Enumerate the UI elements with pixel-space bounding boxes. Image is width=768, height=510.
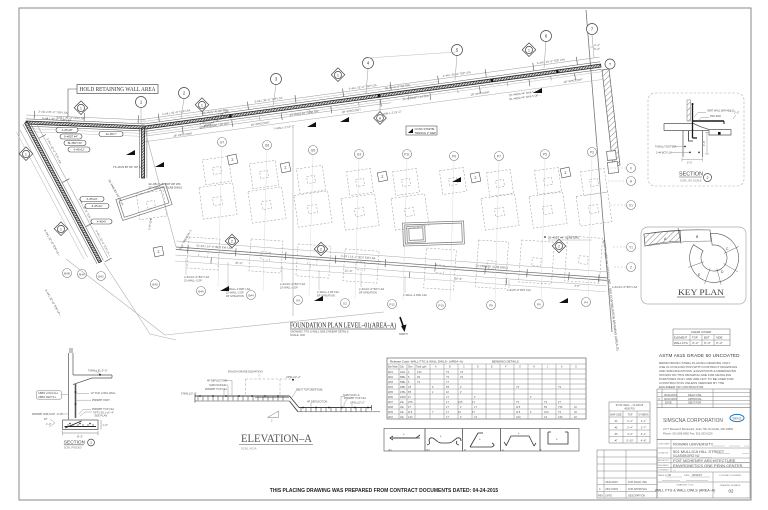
svg-text:DATE: DATE — [665, 400, 672, 404]
svg-text:REV: REV — [598, 495, 603, 498]
svg-text:#5DWBT DWLS DP –0′–6″: #5DWBT DWLS DP –0′–6″ — [32, 412, 63, 416]
svg-text:45BL: 45BL — [400, 386, 406, 389]
svg-text:G4: G4 — [296, 298, 300, 302]
svg-text:06/17/2015: 06/17/2015 — [606, 488, 619, 491]
svg-text:11′5: 11′5 — [408, 411, 413, 414]
svg-text:4–#5×9′: 4–#5×9′ — [97, 220, 107, 224]
svg-text:2′–2″: 2′–2″ — [734, 112, 739, 115]
svg-text:ENGINEER OR CONTRACTOR.: ENGINEER OR CONTRACTOR. — [659, 385, 704, 389]
svg-text:SHOWING: FTG & WALL DWLS REBAR: SHOWING: FTG & WALL DWLS REBAR DETAILS — [290, 330, 349, 334]
svg-text:CONTRACT NUMBER: CONTRACT NUMBER — [719, 474, 742, 477]
svg-text:OTHERS: OTHERS — [638, 413, 649, 416]
svg-text:D: D — [477, 365, 479, 368]
svg-text:G2: G2 — [343, 301, 347, 305]
svg-text:19L: 19L — [400, 411, 405, 414]
svg-text:2177 Research Boulevard, Suite: 2177 Research Boulevard, Suite 700, Rock… — [663, 427, 734, 431]
svg-text:G: G — [519, 365, 521, 368]
svg-text:ABBR DEPT/LL: ABBR DEPT/LL — [38, 395, 57, 399]
svg-text:19L: 19L — [400, 416, 405, 419]
svg-text:1: 1 — [80, 107, 82, 111]
svg-text:1: 1 — [60, 228, 62, 232]
svg-text:G7: G7 — [220, 140, 224, 144]
svg-text:4000 PSI: 4000 PSI — [624, 408, 635, 411]
svg-text:47BL: 47BL — [400, 391, 406, 394]
svg-text:UPSLL/2′–2″: UPSLL/2′–2″ — [286, 375, 301, 379]
svg-text:P6: P6 — [537, 302, 541, 306]
svg-text:SIDE: SIDE — [716, 336, 723, 340]
svg-text:B42: B42 — [98, 274, 104, 278]
svg-text:32′–0″: 32′–0″ — [235, 261, 243, 266]
svg-text:KEY PLAN: KEY PLAN — [678, 288, 724, 297]
svg-text:160N: 160N — [400, 396, 406, 399]
svg-text:DP GPIGATION: DP GPIGATION — [359, 291, 377, 294]
svg-text:JD: JD — [668, 473, 671, 477]
svg-text:T: T — [540, 448, 542, 452]
svg-text:4–0″: 4–0″ — [574, 284, 580, 288]
svg-text:2–#4 BOT LSA: 2–#4 BOT LSA — [656, 152, 672, 155]
svg-text:11′5: 11′5 — [516, 406, 521, 409]
svg-text:65BL: 65BL — [400, 376, 406, 379]
svg-text:DP GPIGATION: DP GPIGATION — [317, 294, 335, 297]
svg-text:W09: W09 — [388, 411, 394, 414]
svg-text:2: 2 — [231, 240, 233, 244]
svg-text:10′0: 10′0 — [544, 411, 549, 414]
svg-text:T/L AN/S BT #4″ OP LA: T/L AN/S BT #4″ OP LA — [113, 165, 142, 169]
svg-text:NORTH: NORTH — [399, 333, 408, 336]
svg-text:2′–2″: 2′–2″ — [594, 43, 600, 47]
svg-text:8–#5DT #4″: 8–#5DT #4″ — [64, 135, 78, 139]
svg-text:3″–2″: 3″–2″ — [716, 341, 723, 345]
svg-text:LOCATION: LOCATION — [658, 451, 669, 454]
svg-text:2: 2 — [707, 176, 709, 180]
svg-text:2G: 2G — [388, 448, 392, 452]
svg-text:—: — — [673, 468, 676, 472]
svg-text:ELEVATION–A: ELEVATION–A — [241, 433, 313, 445]
svg-text:23–WALL–2 DP: 23–WALL–2 DP — [280, 286, 298, 289]
svg-text:22–#5×7′: 22–#5×7′ — [106, 132, 117, 136]
svg-text:6–#5×12′: 6–#5×12′ — [74, 148, 85, 152]
svg-text:1′–0″: 1′–0″ — [46, 423, 51, 426]
svg-text:P12: P12 — [389, 302, 395, 306]
svg-text:32′–0″: 32′–0″ — [345, 269, 353, 274]
svg-text:HOLD RETAINING WALL AREA: HOLD RETAINING WALL AREA — [80, 87, 157, 93]
svg-text:P3: P3 — [590, 150, 594, 154]
svg-text:Release Code: WALL FTG &: Release Code: WALL FTG & WALL DWLS– (ARE… — [390, 360, 463, 364]
svg-text:19L: 19L — [400, 406, 405, 409]
svg-text:DESCRIPTION: DESCRIPTION — [628, 495, 645, 498]
svg-text:P11: P11 — [404, 152, 410, 156]
svg-text:30′–6″: 30′–6″ — [454, 276, 462, 281]
svg-text:2′–7″: 2′–7″ — [641, 426, 647, 429]
svg-text:DRAWING TITLE: DRAWING TITLE — [676, 484, 694, 487]
svg-text:6–#5×24′: 6–#5×24′ — [87, 197, 98, 201]
svg-text:2: 2 — [558, 245, 560, 249]
svg-text:SCRL: NO SCALE: SCRL: NO SCALE — [680, 179, 702, 183]
svg-text:W04: W04 — [388, 386, 394, 389]
svg-text:MADE BY: MADE BY — [658, 474, 668, 477]
svg-text:14′0: 14′0 — [417, 371, 422, 374]
svg-text:T/WALL EL 0′–0″: T/WALL EL 0′–0″ — [88, 369, 108, 373]
svg-text:W01: W01 — [388, 371, 394, 374]
svg-text:TOP: TOP — [627, 413, 632, 416]
svg-text:7′05: 7′05 — [558, 406, 563, 409]
svg-text:B46: B46 — [198, 289, 204, 293]
svg-text:TRENCH 2″ DEP: TRENCH 2″ DEP — [415, 131, 437, 135]
svg-text:VERT WALL BAR #5@12: VERT WALL BAR #5@12 — [707, 110, 735, 113]
svg-text:BL #5DT #4″: BL #5DT #4″ — [68, 141, 83, 145]
svg-text:4P DEFLECTION: 4P DEFLECTION — [307, 399, 327, 403]
svg-text:Simsc: Simsc — [732, 417, 742, 421]
svg-text:W05: W05 — [388, 391, 394, 394]
svg-text:FIELD USE: FIELD USE — [688, 393, 702, 397]
svg-text:06/17/2015: 06/17/2015 — [664, 397, 678, 401]
svg-text:P8: P8 — [489, 303, 493, 307]
svg-text:Phone: 301-659-0950 Fax: 301-: Phone: 301-659-0950 Fax: 301-263-0229 — [663, 432, 713, 436]
svg-text:4′–8″: 4′–8″ — [641, 439, 647, 442]
svg-text:T/WALL/2′–2″: T/WALL/2′–2″ — [181, 392, 197, 396]
svg-text:FOR FIELD USE: FOR FIELD USE — [628, 481, 647, 484]
svg-text:ABBR LONG/ALL: ABBR LONG/ALL — [38, 391, 59, 395]
svg-text:DATE: DATE — [684, 474, 690, 477]
svg-text:ARCHITECT: ARCHITECT — [658, 459, 670, 462]
svg-text:FOUNDATION PLAN LEVEL–01(AREA–: FOUNDATION PLAN LEVEL–01(AREA–A) — [290, 323, 396, 330]
svg-text:T/WALL/T BOT LSA: T/WALL/T BOT LSA — [655, 145, 677, 148]
svg-text:WALL FTG: WALL FTG — [674, 341, 688, 345]
svg-text:BENDING DETAILS: BENDING DETAILS — [492, 360, 519, 364]
svg-text:06/11/2015: 06/11/2015 — [606, 481, 619, 484]
svg-text:2–WALL–4 DWL LSA: 2–WALL–4 DWL LSA — [403, 294, 427, 297]
svg-text:P4: P4 — [584, 300, 588, 304]
svg-text:G5: G5 — [311, 148, 315, 152]
svg-text:54BL: 54BL — [400, 381, 406, 384]
svg-text:4–#5×28′: 4–#5×28′ — [62, 128, 73, 132]
svg-text:4P DEFLECTION: 4P DEFLECTION — [207, 379, 227, 383]
svg-text:15′5: 15′5 — [408, 401, 413, 404]
svg-text:P9: P9 — [452, 154, 456, 158]
svg-text:ROUGH GRADE ELEVATION: ROUGH GRADE ELEVATION — [228, 370, 263, 374]
svg-text:ROWAN UNIVERSITY: ROWAN UNIVERSITY — [673, 442, 714, 447]
svg-text:1: 1 — [201, 104, 203, 108]
svg-text:O: O — [575, 365, 577, 368]
svg-text:G6: G6 — [265, 143, 269, 147]
svg-text:ASTM A615 GRADE 60 UNCOATED: ASTM A615 GRADE 60 UNCOATED — [659, 353, 740, 358]
svg-text:Y1: Y1 — [629, 245, 633, 249]
svg-text:APPROVAL: APPROVAL — [688, 397, 702, 401]
svg-text:21′5: 21′5 — [458, 401, 463, 404]
svg-text:ENVIRONETICS ONE PENN CENTE: ENVIRONETICS ONE PENN CENTER — [673, 463, 743, 468]
svg-text:120L: 120L — [400, 371, 406, 374]
svg-text:DRAWING NUMBER: DRAWING NUMBER — [720, 484, 741, 487]
svg-text:G3: G3 — [357, 152, 361, 156]
svg-text:1′–0″: 1′–0″ — [103, 424, 108, 427]
svg-text:B4B: B4B — [64, 271, 70, 275]
svg-text:06/11/2015: 06/11/2015 — [664, 393, 677, 397]
svg-text:W03: W03 — [388, 381, 394, 384]
svg-text:SEE PLAN: SEE PLAN — [95, 413, 108, 417]
svg-text:SECTION: SECTION — [679, 172, 703, 178]
svg-text:W10: W10 — [388, 416, 394, 419]
svg-text:D: D — [464, 448, 466, 452]
svg-text:19L: 19L — [400, 401, 405, 404]
svg-text:SCRL PN/5300: SCRL PN/5300 — [64, 446, 82, 450]
svg-text:SENT FOR: SENT FOR — [688, 400, 701, 404]
svg-text:FOR APPROVAL: FOR APPROVAL — [628, 488, 648, 491]
svg-text:3′–1″: 3′–1″ — [641, 433, 647, 436]
svg-text:ELEMENT: ELEMENT — [674, 336, 688, 340]
svg-text:SCRL SIC!A: SCRL SIC!A — [241, 447, 257, 451]
svg-text:DATE: DATE — [606, 495, 613, 498]
svg-text:Size: Size — [408, 365, 413, 368]
svg-text:1: 1 — [337, 74, 339, 78]
svg-text:2′–2″: 2′–2″ — [687, 162, 692, 165]
svg-text:2–#4×5′–8″ BOT LSA: 2–#4×5′–8″ BOT LSA — [507, 289, 531, 292]
svg-text:02: 02 — [729, 489, 734, 494]
svg-text:TOP: TOP — [692, 336, 698, 340]
svg-text:23–WALL–2 DP: 23–WALL–2 DP — [184, 279, 202, 282]
svg-text:1: 1 — [25, 153, 27, 157]
svg-text:BOT: BOT — [704, 336, 710, 340]
svg-text:W06: W06 — [388, 396, 394, 399]
svg-text:CUSTOMER: CUSTOMER — [658, 443, 670, 445]
svg-text:C: C — [463, 365, 465, 368]
svg-text:2′–1″: 2′–1″ — [641, 420, 647, 423]
svg-text:06/11/15: 06/11/15 — [692, 473, 702, 477]
svg-text:6′–0″: 6′–0″ — [594, 47, 600, 51]
svg-text:Bar Mark: Bar Mark — [388, 365, 399, 368]
svg-text:#5DWBT TOP LSA: #5DWBT TOP LSA — [344, 396, 366, 400]
svg-text:3″–2″: 3″–2″ — [692, 341, 699, 345]
svg-text:Total Lgth: Total Lgth — [416, 365, 427, 368]
svg-text:2–#4×10′–6″ BOT LSA: 2–#4×10′–6″ BOT LSA — [612, 286, 637, 289]
svg-text:11′5: 11′5 — [516, 411, 521, 414]
svg-text:THIS PLACING DRAWING WAS PREPA: THIS PLACING DRAWING WAS PREPARED FROM C… — [270, 488, 499, 494]
svg-text:B44: B44 — [248, 293, 254, 297]
svg-text:P5: P5 — [543, 152, 547, 156]
svg-text:0″–3″: 0″–3″ — [704, 341, 711, 345]
svg-text:2′–2″: 2′–2″ — [627, 420, 633, 423]
svg-text:1: 1 — [90, 441, 92, 445]
svg-text:B40: B40 — [152, 282, 158, 286]
svg-text:BAR SIZE: BAR SIZE — [610, 413, 622, 416]
svg-text:8′–2″: 8′–2″ — [77, 435, 83, 439]
svg-text:1′05: 1′05 — [558, 416, 563, 419]
svg-text:#5DWBT DIWT: #5DWBT DIWT — [92, 398, 110, 402]
svg-text:2′–6″: 2′–6″ — [703, 141, 706, 146]
svg-text:#3 #4′ WALL – CLASS B: #3 #4′ WALL – CLASS B — [616, 404, 644, 407]
svg-text:24′0: 24′0 — [516, 416, 521, 419]
svg-text:2′–4″: 2′–4″ — [627, 426, 633, 429]
svg-text:H: H — [533, 365, 535, 368]
svg-text:DP GPIGATION: DP GPIGATION — [226, 295, 244, 298]
svg-text:UPSLL/2′–2″: UPSLL/2′–2″ — [350, 401, 365, 405]
svg-text:W02: W02 — [388, 376, 394, 379]
svg-text:14′0: 14′0 — [408, 416, 413, 419]
svg-text:1: 1 — [528, 49, 530, 53]
svg-text:8–#5×16′: 8–#5×16′ — [92, 204, 103, 208]
svg-text:X1: X1 — [629, 203, 633, 207]
svg-text:SHIM SCR LA: SHIM SCR LA — [209, 383, 226, 387]
svg-text:#5DWBT TOP LSA: #5DWBT TOP LSA — [205, 387, 227, 391]
svg-text:W07: W07 — [388, 401, 394, 404]
svg-text:ENGINEER: ENGINEER — [658, 465, 669, 467]
svg-text:CONTRACT: CONTRACT — [658, 468, 670, 471]
svg-text:SCALE: 3/32: SCALE: 3/32 — [290, 333, 306, 337]
svg-text:WALL FTG & WALL DWLS (AREA–A): WALL FTG & WALL DWLS (AREA–A) — [655, 489, 716, 493]
svg-text:P10: P10 — [438, 303, 444, 307]
svg-text:CLEAR COVER: CLEAR COVER — [691, 330, 711, 334]
svg-text:W08: W08 — [388, 406, 394, 409]
svg-text:5′–10″: 5′–10″ — [627, 439, 634, 442]
svg-text:12″ THK LONG WALL: 12″ THK LONG WALL — [91, 391, 117, 395]
svg-text:Z: Z — [630, 265, 632, 269]
svg-text:4′–0″: 4′–0″ — [627, 433, 633, 436]
svg-text:DWL BAR: DWL BAR — [710, 115, 721, 118]
svg-text:20–#5DT #4″ SLAB DWL: 20–#5DT #4″ SLAB DWL — [548, 236, 580, 240]
svg-text:SIMSCNA CORPORATION: SIMSCNA CORPORATION — [663, 418, 723, 424]
svg-text:45°: 45° — [44, 418, 48, 421]
svg-text:2: 2 — [320, 248, 322, 252]
svg-text:BENT TOP DEEP DWL: BENT TOP DEEP DWL — [296, 388, 324, 392]
svg-text:P7: P7 — [497, 154, 501, 158]
